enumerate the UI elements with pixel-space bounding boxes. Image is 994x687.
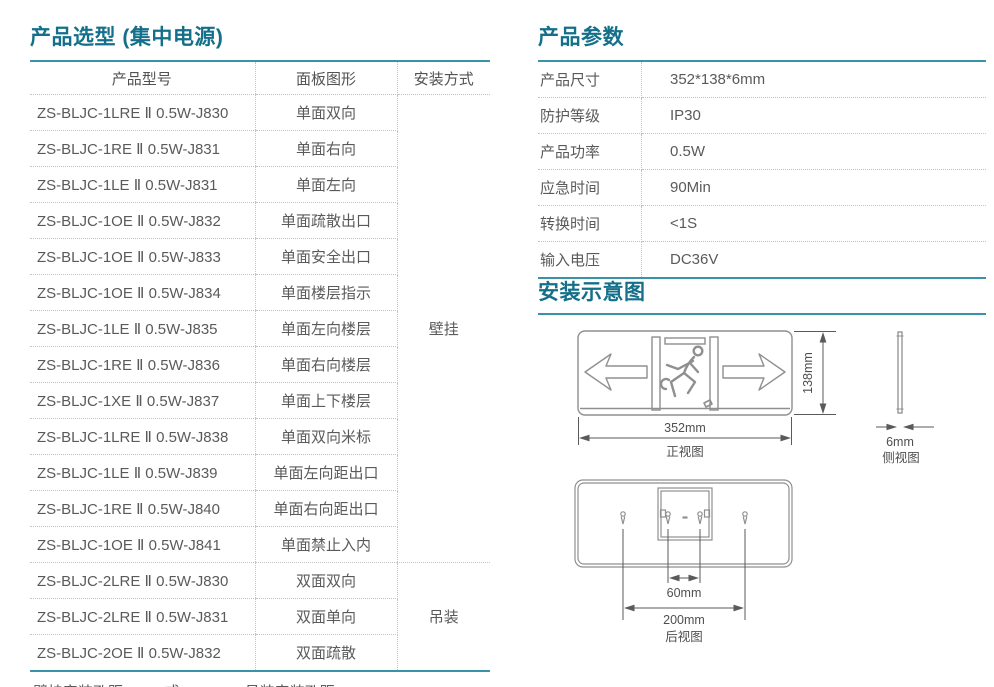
arrowhead-down <box>820 404 827 415</box>
mount-type-cell: 吊装 <box>397 563 490 672</box>
model-cell: ZS-BLJC-1OE Ⅱ 0.5W-J841 <box>30 527 255 563</box>
parameter-value: 352*138*6mm <box>642 61 987 98</box>
model-cell: ZS-BLJC-2LRE Ⅱ 0.5W-J831 <box>30 599 255 635</box>
front-width-label: 352mm <box>664 421 706 435</box>
selection-section: 产品选型 (集中电源) 产品型号 面板图形 安装方式 ZS-BLJC-1LRE … <box>30 24 490 687</box>
panel-graphic-cell: 单面双向 <box>255 95 397 131</box>
parameter-label: 防护等级 <box>538 98 642 134</box>
rear-view-caption: 后视图 <box>665 629 703 644</box>
selection-title: 产品选型 (集中电源) <box>30 24 490 54</box>
model-cell: ZS-BLJC-1RE Ⅱ 0.5W-J840 <box>30 491 255 527</box>
panel-graphic-cell: 单面左向距出口 <box>255 455 397 491</box>
rear-inner-hole-label: 60mm <box>667 586 702 600</box>
panel-graphic-cell: 双面疏散 <box>255 635 397 672</box>
parameter-label: 应急时间 <box>538 170 642 206</box>
model-cell: ZS-BLJC-1OE Ⅱ 0.5W-J832 <box>30 203 255 239</box>
section-rule <box>538 313 986 315</box>
side-thickness-label: 6mm <box>886 435 914 449</box>
model-cell: ZS-BLJC-2OE Ⅱ 0.5W-J832 <box>30 635 255 672</box>
panel-graphic-cell: 单面疏散出口 <box>255 203 397 239</box>
panel-graphic-cell: 单面右向楼层 <box>255 347 397 383</box>
installation-title: 安装示意图 <box>538 279 986 309</box>
parameter-row: 转换时间<1S <box>538 206 986 242</box>
front-view-diagram <box>578 331 792 415</box>
mount-distance-note: 壁挂安装孔距60mm或200mm；吊装安装孔距230mm <box>30 671 490 687</box>
model-cell: ZS-BLJC-1LRE Ⅱ 0.5W-J830 <box>30 95 255 131</box>
col-header-panel: 面板图形 <box>255 61 397 95</box>
model-cell: ZS-BLJC-1OE Ⅱ 0.5W-J833 <box>30 239 255 275</box>
model-cell: ZS-BLJC-1LRE Ⅱ 0.5W-J838 <box>30 419 255 455</box>
panel-graphic-cell: 单面右向距出口 <box>255 491 397 527</box>
arrowhead-right <box>781 435 792 442</box>
model-cell: ZS-BLJC-2LRE Ⅱ 0.5W-J830 <box>30 563 255 599</box>
selection-footnote-row: 壁挂安装孔距60mm或200mm；吊装安装孔距230mm <box>30 671 490 687</box>
parameter-row: 输入电压DC36V <box>538 242 986 279</box>
front-view-dimensions <box>579 332 837 446</box>
model-cell: ZS-BLJC-1RE Ⅱ 0.5W-J836 <box>30 347 255 383</box>
side-view-caption: 侧视图 <box>882 450 920 465</box>
parameter-label: 产品功率 <box>538 134 642 170</box>
model-cell: ZS-BLJC-1LE Ⅱ 0.5W-J835 <box>30 311 255 347</box>
model-cell: ZS-BLJC-1LE Ⅱ 0.5W-J839 <box>30 455 255 491</box>
model-cell: ZS-BLJC-1OE Ⅱ 0.5W-J834 <box>30 275 255 311</box>
panel-graphic-cell: 单面双向米标 <box>255 419 397 455</box>
panel-graphic-cell: 单面左向 <box>255 167 397 203</box>
arrowhead-left <box>579 435 590 442</box>
side-view-dimensions <box>876 424 934 430</box>
parameter-row: 产品尺寸352*138*6mm <box>538 61 986 98</box>
parameter-label: 产品尺寸 <box>538 61 642 98</box>
panel-graphic-cell: 单面楼层指示 <box>255 275 397 311</box>
parameter-row: 防护等级IP30 <box>538 98 986 134</box>
parameter-row: 产品功率0.5W <box>538 134 986 170</box>
arrowhead-right <box>689 575 700 582</box>
product-datasheet-page: 产品选型 (集中电源) 产品型号 面板图形 安装方式 ZS-BLJC-1LRE … <box>0 0 994 687</box>
parameter-value: 90Min <box>642 170 987 206</box>
arrowhead-right <box>887 424 898 430</box>
rear-panel-outline <box>575 480 792 567</box>
selection-row: ZS-BLJC-2LRE Ⅱ 0.5W-J830双面双向吊装 <box>30 563 490 599</box>
arrowhead-left <box>669 575 680 582</box>
panel-graphic-cell: 单面禁止入内 <box>255 527 397 563</box>
model-cell: ZS-BLJC-1RE Ⅱ 0.5W-J831 <box>30 131 255 167</box>
right-arrow-icon <box>723 354 785 390</box>
selection-header-row: 产品型号 面板图形 安装方式 <box>30 61 490 95</box>
parameter-value: IP30 <box>642 98 987 134</box>
product-parameters-table: 产品尺寸352*138*6mm防护等级IP30产品功率0.5W应急时间90Min… <box>538 60 986 279</box>
arrowhead-left <box>903 424 914 430</box>
rear-view-diagram <box>575 480 792 567</box>
panel-graphic-cell: 双面双向 <box>255 563 397 599</box>
mount-type-cell: 壁挂 <box>397 95 490 563</box>
parameters-title: 产品参数 <box>538 24 986 54</box>
panel-graphic-cell: 单面安全出口 <box>255 239 397 275</box>
selection-row: ZS-BLJC-1LRE Ⅱ 0.5W-J830单面双向壁挂 <box>30 95 490 131</box>
panel-graphic-cell: 双面单向 <box>255 599 397 635</box>
rear-outer-hole-label: 200mm <box>663 613 705 627</box>
rear-view-dimensions <box>623 529 745 620</box>
left-arrow-icon <box>585 354 647 390</box>
front-height-label: 138mm <box>801 352 815 394</box>
model-cell: ZS-BLJC-1LE Ⅱ 0.5W-J831 <box>30 167 255 203</box>
installation-diagrams: 352mm 138mm 正视图 6mm 侧视图 <box>538 325 986 665</box>
parameter-label: 转换时间 <box>538 206 642 242</box>
panel-graphic-cell: 单面上下楼层 <box>255 383 397 419</box>
arrowhead-up <box>820 332 827 343</box>
side-view-diagram: 6mm 侧视图 <box>876 332 934 465</box>
col-header-model: 产品型号 <box>30 61 255 95</box>
parameter-value: DC36V <box>642 242 987 279</box>
panel-graphic-cell: 单面右向 <box>255 131 397 167</box>
arrowhead-right <box>734 605 745 612</box>
parameter-value: 0.5W <box>642 134 987 170</box>
product-selection-table: 产品型号 面板图形 安装方式 ZS-BLJC-1LRE Ⅱ 0.5W-J830单… <box>30 60 490 687</box>
parameter-row: 应急时间90Min <box>538 170 986 206</box>
running-man-icon <box>652 337 718 410</box>
model-cell: ZS-BLJC-1XE Ⅱ 0.5W-J837 <box>30 383 255 419</box>
right-column: 产品参数 产品尺寸352*138*6mm防护等级IP30产品功率0.5W应急时间… <box>538 24 986 665</box>
col-header-mount: 安装方式 <box>397 61 490 95</box>
arrowhead-left <box>624 605 635 612</box>
parameter-label: 输入电压 <box>538 242 642 279</box>
panel-graphic-cell: 单面左向楼层 <box>255 311 397 347</box>
front-view-caption: 正视图 <box>666 444 704 459</box>
parameter-value: <1S <box>642 206 987 242</box>
side-profile-outline <box>898 332 902 413</box>
